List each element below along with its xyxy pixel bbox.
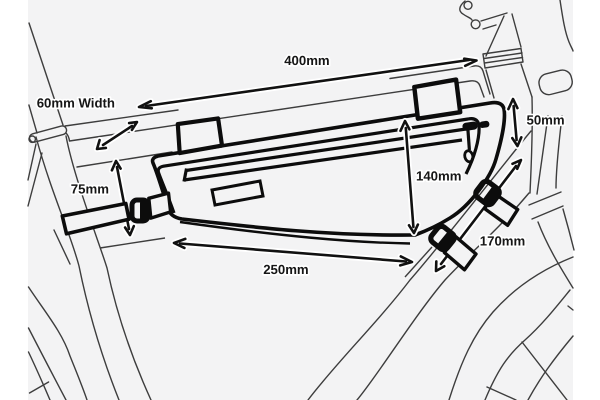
svg-text:170mm: 170mm bbox=[480, 233, 525, 248]
svg-text:250mm: 250mm bbox=[263, 262, 308, 277]
svg-text:60mm Width: 60mm Width bbox=[37, 96, 115, 111]
svg-text:140mm: 140mm bbox=[416, 169, 461, 184]
svg-text:400mm: 400mm bbox=[284, 53, 329, 68]
svg-text:50mm: 50mm bbox=[527, 113, 565, 128]
svg-text:75mm: 75mm bbox=[71, 182, 109, 197]
